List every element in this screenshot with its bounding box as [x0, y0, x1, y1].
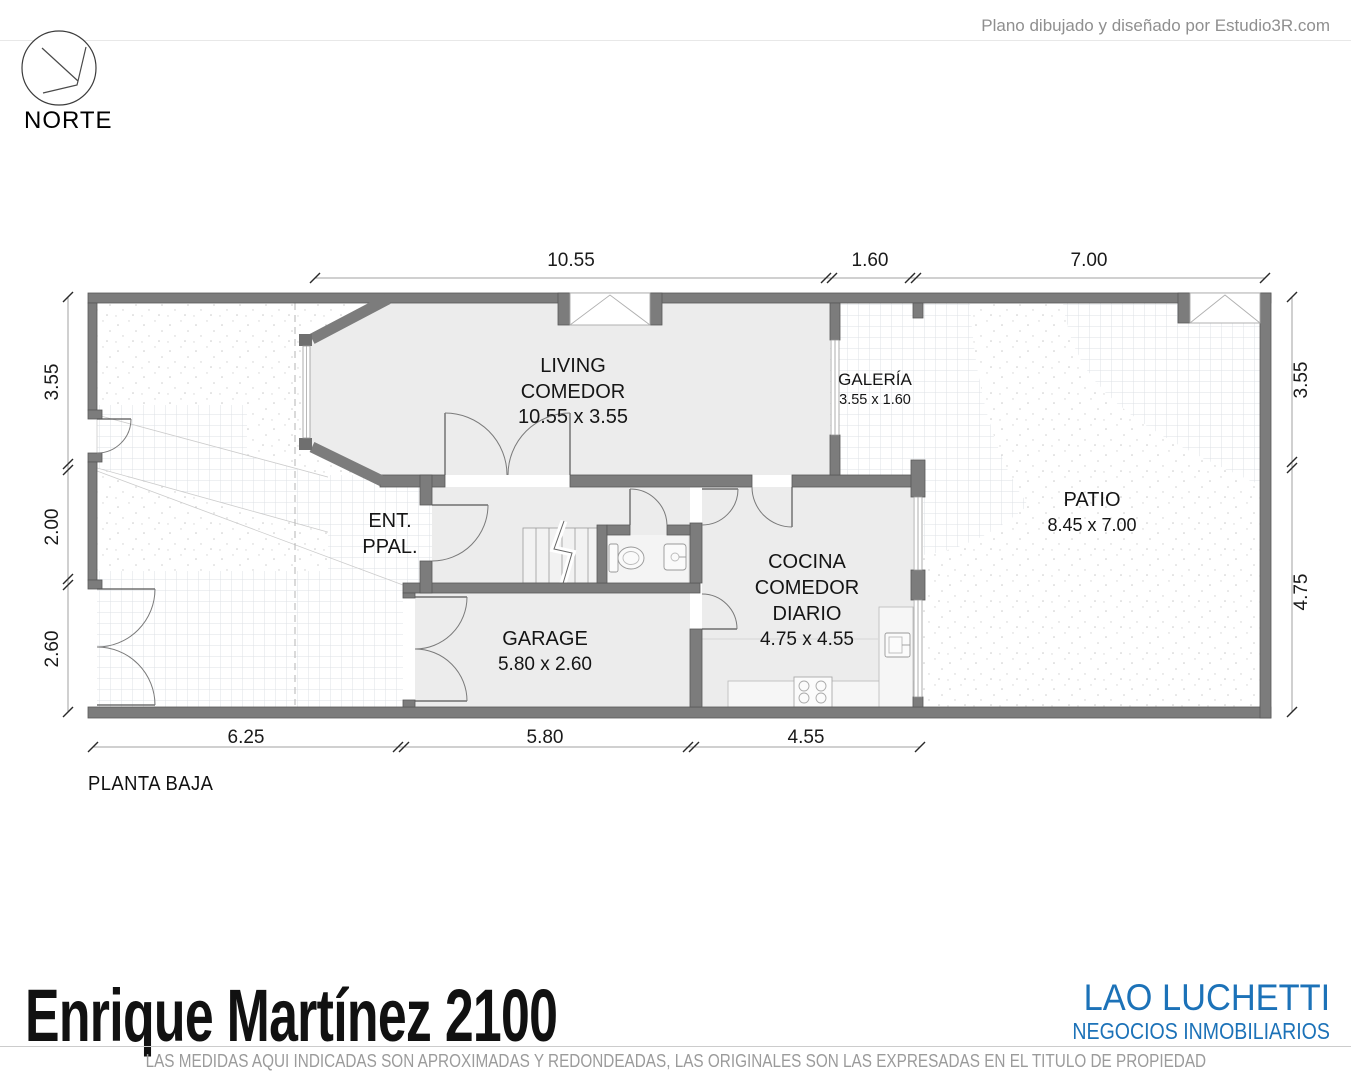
- dim-top-galeria: 1.60: [820, 250, 920, 272]
- dim-left-1: 3.55: [42, 337, 64, 427]
- room-label-entrada: ENT. PPAL.: [345, 508, 435, 560]
- dim-left-3: 2.60: [42, 604, 64, 694]
- dim-bottom-1: 6.25: [186, 727, 306, 749]
- designer-credit: Plano dibujado y diseñado por Estudio3R.…: [981, 16, 1330, 36]
- bath-sink-icon: [664, 544, 686, 570]
- kitchen-sink-icon: [885, 633, 910, 657]
- room-label-living: LIVING COMEDOR 10.55 x 3.55: [453, 353, 693, 430]
- floor-name: PLANTA BAJA: [88, 773, 213, 796]
- stove-icon: [794, 677, 832, 707]
- header-divider: [0, 40, 1351, 41]
- dim-top-living: 10.55: [511, 250, 631, 272]
- dim-bottom-3: 4.55: [746, 727, 866, 749]
- room-label-cocina: COCINA COMEDOR DIARIO 4.75 x 4.55: [727, 549, 887, 652]
- room-label-galeria: GALERÍA 3.55 x 1.60: [820, 369, 930, 410]
- compass-label: NORTE: [24, 107, 113, 135]
- disclaimer-row: LAS MEDIDAS AQUI INDICADAS SON APROXIMAD…: [0, 1051, 1351, 1072]
- brand-name: LAO LUCHETTI: [1083, 978, 1330, 1019]
- north-compass-icon: [20, 28, 104, 112]
- room-label-patio: PATIO 8.45 x 7.00: [1012, 487, 1172, 538]
- dim-right-1: 3.55: [1291, 335, 1313, 425]
- brand-subtitle: NEGOCIOS INMOBILIARIOS: [1073, 1019, 1330, 1044]
- staircase: [523, 521, 599, 587]
- dim-top-patio: 7.00: [1039, 250, 1139, 272]
- room-label-garage: GARAGE 5.80 x 2.60: [465, 626, 625, 677]
- dim-left-2: 2.00: [42, 482, 64, 572]
- floorplan-page: Plano dibujado y diseñado por Estudio3R.…: [0, 0, 1351, 1080]
- footer-divider: [0, 1046, 1351, 1047]
- dim-bottom-2: 5.80: [485, 727, 605, 749]
- dim-right-2: 4.75: [1291, 547, 1313, 637]
- disclaimer-text: LAS MEDIDAS AQUI INDICADAS SON APROXIMAD…: [145, 1051, 1206, 1072]
